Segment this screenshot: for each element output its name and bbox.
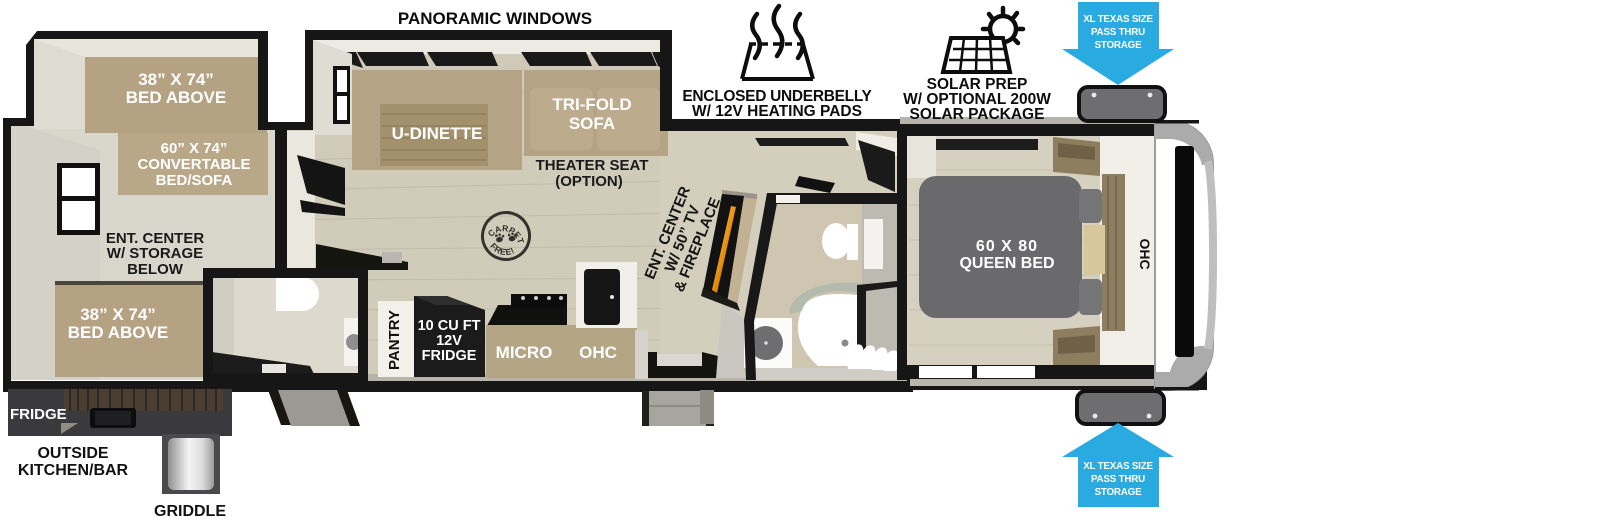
svg-text:PASS THRU: PASS THRU [1091, 27, 1145, 38]
svg-text:OHC: OHC [579, 343, 617, 362]
svg-text:(OPTION): (OPTION) [555, 173, 623, 190]
svg-text:GRIDDLE: GRIDDLE [154, 503, 226, 520]
svg-text:THEATER SEAT: THEATER SEAT [536, 157, 649, 174]
svg-text:XL TEXAS SIZE: XL TEXAS SIZE [1083, 461, 1153, 472]
svg-text:BED ABOVE: BED ABOVE [126, 88, 226, 107]
svg-text:STORAGE: STORAGE [1095, 487, 1143, 498]
svg-text:10 CU FT: 10 CU FT [418, 318, 481, 334]
svg-text:CONVERTABLE: CONVERTABLE [137, 156, 250, 173]
svg-text:BELOW: BELOW [127, 261, 184, 278]
svg-text:SOLAR PACKAGE: SOLAR PACKAGE [910, 106, 1045, 123]
svg-text:STORAGE: STORAGE [1095, 40, 1143, 51]
svg-text:OUTSIDE: OUTSIDE [37, 445, 108, 462]
svg-text:PASS THRU: PASS THRU [1091, 474, 1145, 485]
svg-text:FRIDGE: FRIDGE [10, 406, 67, 423]
svg-text:KITCHEN/BAR: KITCHEN/BAR [18, 462, 129, 479]
svg-text:60” X 74”: 60” X 74” [161, 140, 228, 157]
svg-text:PANTRY: PANTRY [386, 310, 403, 370]
svg-text:38” X 74”: 38” X 74” [80, 305, 156, 324]
svg-text:QUEEN BED: QUEEN BED [959, 255, 1054, 272]
svg-text:SOFA: SOFA [569, 114, 615, 133]
svg-text:60 X 80: 60 X 80 [976, 238, 1038, 255]
svg-text:U-DINETTE: U-DINETTE [392, 124, 483, 143]
svg-text:W/ STORAGE: W/ STORAGE [107, 245, 203, 262]
svg-text:PANORAMIC WINDOWS: PANORAMIC WINDOWS [398, 9, 592, 28]
svg-text:MICRO: MICRO [496, 343, 553, 362]
svg-text:OHC: OHC [1137, 238, 1153, 269]
svg-text:FRIDGE: FRIDGE [422, 348, 477, 364]
svg-text:W/ 12V HEATING PADS: W/ 12V HEATING PADS [692, 103, 862, 120]
svg-text:BED ABOVE: BED ABOVE [68, 323, 168, 342]
svg-text:BED/SOFA: BED/SOFA [156, 172, 233, 189]
svg-text:38” X 74”: 38” X 74” [138, 70, 214, 89]
svg-text:12V: 12V [436, 333, 462, 349]
svg-text:TRI-FOLD: TRI-FOLD [552, 95, 631, 114]
svg-text:XL TEXAS SIZE: XL TEXAS SIZE [1083, 14, 1153, 25]
